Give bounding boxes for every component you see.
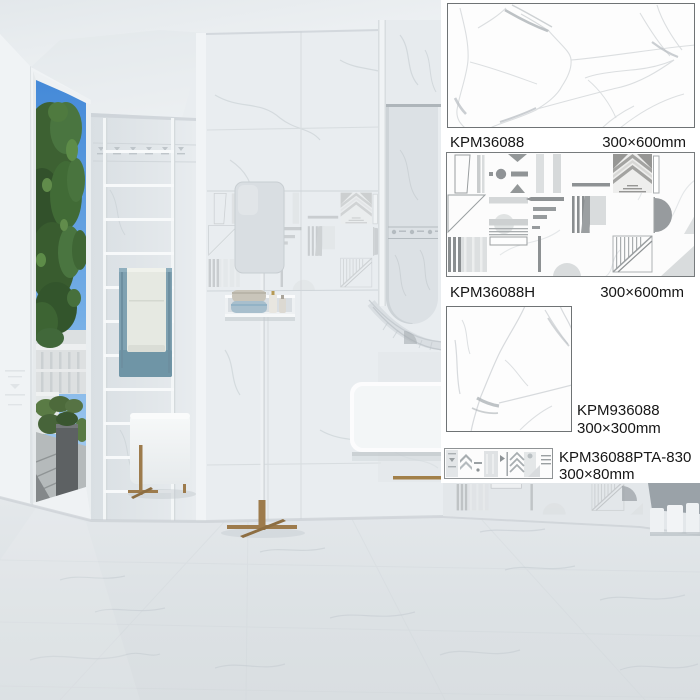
svg-text:300×600mm: 300×600mm [602, 134, 686, 151]
svg-text:300×600mm: 300×600mm [600, 284, 684, 301]
svg-text:300×80mm: 300×80mm [559, 466, 634, 483]
svg-text:KPM36088: KPM36088 [450, 134, 524, 151]
svg-text:KPM936088: KPM936088 [577, 402, 660, 419]
svg-text:300×300mm: 300×300mm [577, 420, 661, 437]
svg-text:KPM36088PTA-830: KPM36088PTA-830 [559, 449, 691, 466]
svg-text:KPM36088H: KPM36088H [450, 284, 535, 301]
